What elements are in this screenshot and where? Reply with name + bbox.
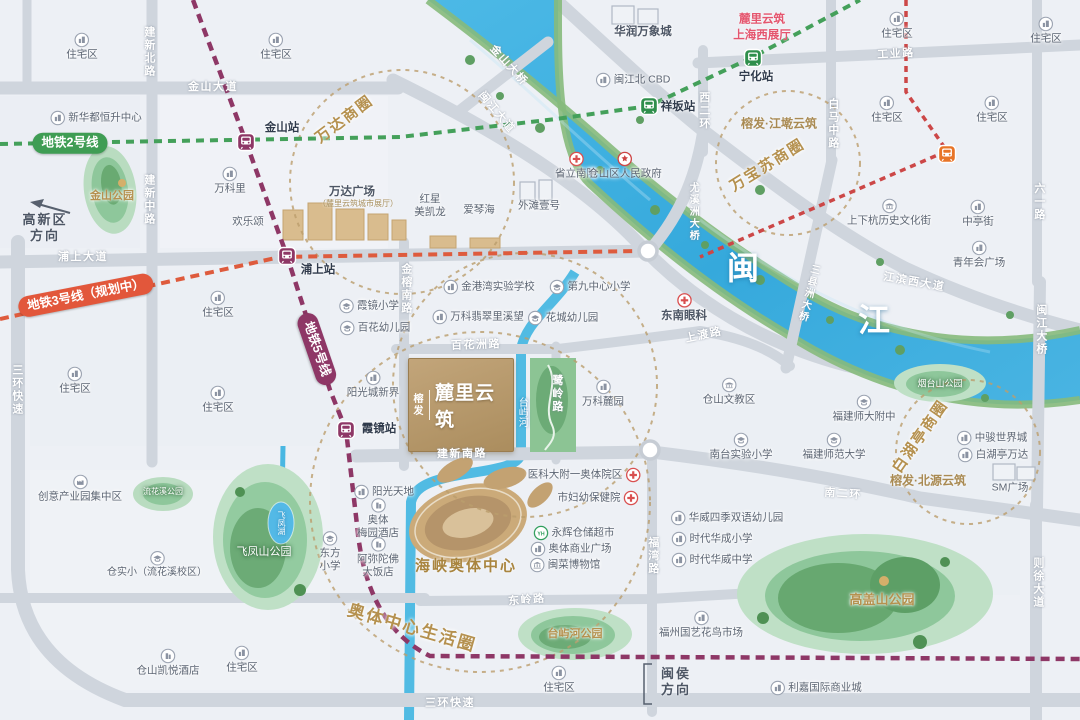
label-text: 金山大桥 <box>487 43 529 88</box>
poi-label: 福建师大附中 <box>833 394 896 423</box>
label-text: 闽江北 CBD <box>614 73 671 86</box>
building-icon <box>958 448 973 463</box>
poi-label: 中亭街 <box>962 199 994 228</box>
label-text: 奥体中心生活圈 <box>345 600 478 655</box>
label-text: 住宅区 <box>226 661 258 674</box>
poi-label: 创意产业园集中区 <box>38 474 122 503</box>
poi-label: 外滩壹号 <box>518 199 560 212</box>
label-text: 万科翡翠里溪望 <box>450 310 524 323</box>
poi-label: 白湖亭万达 <box>958 448 1029 463</box>
minjiang-river-label: 江 <box>858 300 890 340</box>
label-text: 台屿河 <box>516 397 527 427</box>
building-icon <box>672 553 687 568</box>
road-label: 福湾路 <box>645 537 659 576</box>
label-text: 外滩壹号 <box>518 199 560 211</box>
label-text: 利嘉国际商业城 <box>788 681 862 694</box>
road-label: 六一路 <box>1031 183 1045 222</box>
label-text: SM广场 <box>992 481 1029 493</box>
label-text: 金山站 <box>265 122 300 134</box>
label-text: 第九中心小学 <box>568 280 631 293</box>
park-label: 台屿河公园 <box>548 628 603 642</box>
water-label: 飞凤湖 <box>276 511 286 535</box>
label-text: 南台实验小学 <box>710 448 773 461</box>
building-icon <box>957 431 972 446</box>
building-icon <box>75 32 90 47</box>
poi-label: 红星 美凯龙 <box>414 193 446 219</box>
poi-label: 奥体商业广场 <box>531 542 612 557</box>
label-text: 阳光天地 <box>372 485 414 498</box>
building-icon <box>972 240 987 255</box>
hospital-icon <box>625 468 640 483</box>
pushang-station-icon <box>278 247 297 266</box>
label-text: 永辉仓储超市 <box>552 526 615 539</box>
label-text: 建新北路 <box>143 26 155 78</box>
park-label: 飞凤山公园 <box>237 546 292 560</box>
metro-station-icon <box>237 133 256 152</box>
label-text: 创意产业园集中区 <box>38 490 122 503</box>
label-text: 金港湾实验学校 <box>461 280 535 293</box>
poi-label: 住宅区 <box>543 665 575 694</box>
label-text: 祥坂站 <box>661 101 696 113</box>
school-icon <box>339 299 354 314</box>
metro-station-icon <box>278 247 297 266</box>
business-circle-label: 万达商圈 <box>312 92 378 148</box>
gaogaishan-park-label: 高盖山公园 <box>849 592 914 608</box>
poi-label: 青年会广场 <box>953 240 1006 269</box>
business-circle-label: 万宝苏商圈 <box>727 136 809 197</box>
label-text: 阿弥陀佛 大饭店 <box>357 553 399 579</box>
poi-label: 欢乐颂 <box>232 215 264 228</box>
label-text: 闽江大道 <box>476 89 517 135</box>
hospital-icon <box>569 151 584 166</box>
poi-label: 住宅区 <box>260 32 292 61</box>
road-label: 上渡路 <box>684 325 724 346</box>
label-text: 高新区 方向 <box>22 212 67 243</box>
label-text: 金山大道 <box>188 81 238 93</box>
label-text: 住宅区 <box>976 111 1008 124</box>
poi-label: 万达广场 <box>329 185 375 199</box>
label-text: 万科里 <box>214 182 246 195</box>
label-text: 榕发·江墘云筑 <box>741 117 817 131</box>
poi-label: 阿弥陀佛 大饭店 <box>357 537 399 579</box>
direction-gaoxinqu: 高新区 方向 <box>22 212 67 245</box>
label-text: 西二环 <box>698 92 710 131</box>
label-text: 福州国艺花鸟市场 <box>659 626 743 639</box>
label-text: 阳光城新界 <box>347 386 400 399</box>
label-text: 浦上大道 <box>58 251 108 263</box>
label-text: 华润万象城 <box>614 26 672 38</box>
label-text: 时代华威中学 <box>690 553 753 566</box>
industry-icon <box>73 474 88 489</box>
poi-label: 闽江北 CBD <box>596 73 671 88</box>
label-text: 仓山区人民政府 <box>588 167 662 180</box>
school-icon <box>857 394 872 409</box>
label-text: 海峡奥体中心 <box>415 558 517 575</box>
svg-text:YH: YH <box>537 531 544 537</box>
road-label: 三环快速 <box>425 697 475 711</box>
building-icon <box>971 199 986 214</box>
building-icon <box>235 645 250 660</box>
hotel-icon <box>371 537 386 552</box>
label-text: 霞镜站 <box>362 423 397 435</box>
minjiang-river-label: 闽 <box>727 248 759 288</box>
direction-minhou: 闽侯 方向 <box>661 666 691 699</box>
label-text: 闽 <box>727 250 759 286</box>
metro-station-icon <box>938 145 957 164</box>
label-text: 金山公园 <box>90 190 134 202</box>
label-text: 白湖亭万达 <box>976 448 1029 461</box>
station-label: 金山站 <box>265 121 300 135</box>
poi-label: 住宅区 <box>881 11 913 40</box>
label-text: 住宅区 <box>202 306 234 319</box>
road-label: 尤溪洲大桥 <box>686 182 699 242</box>
label-text: 上下杭历史文化街 <box>847 214 931 227</box>
road-label: 金山大桥 <box>486 43 530 89</box>
poi-label: YH永辉仓储超市 <box>534 526 615 541</box>
government-icon <box>618 151 633 166</box>
landmark-label: 榕发·江墘云筑 <box>741 117 817 132</box>
label-text: 飞凤湖 <box>277 511 286 535</box>
building-icon <box>552 665 567 680</box>
map-labels-layer: 金山大道建新北路建新中路浦上大道三环快速三环快速金榕南路百花洲路鹭岭路建新南路东… <box>0 0 1080 720</box>
label-text: 尤溪洲大桥 <box>687 182 698 242</box>
label-text: 浦上站 <box>301 264 336 276</box>
poi-label: 住宅区 <box>66 32 98 61</box>
label-text: 东南眼科 <box>661 309 707 323</box>
label-text: 烟台山公园 <box>917 378 962 388</box>
poi-sublabel: （麓里云筑城市展厅） <box>318 199 398 209</box>
label-text: 时代华成小学 <box>690 532 753 545</box>
road-label: 则徐大道 <box>1030 557 1044 609</box>
poi-label: 市妇幼保健院 <box>558 491 639 506</box>
label-text: 中骏世界城 <box>975 431 1028 444</box>
label-text: 市妇幼保健院 <box>558 491 621 504</box>
hospital-icon <box>677 293 692 308</box>
xiajing-station-icon <box>337 421 356 440</box>
metro-station-icon <box>640 97 659 116</box>
label-text: 华威四季双语幼儿园 <box>689 511 784 524</box>
poi-label: 住宅区 <box>202 290 234 319</box>
building-icon <box>68 366 83 381</box>
label-text: 榕发·北源云筑 <box>890 474 966 488</box>
poi-label: 时代华威中学 <box>672 553 753 568</box>
building-icon <box>531 542 546 557</box>
poi-label: 福建师范大学 <box>803 432 866 461</box>
label-text: 工业路 <box>877 47 915 61</box>
label-text: 住宅区 <box>543 681 575 694</box>
label-text: 南二环 <box>824 487 862 502</box>
label-text: 福建师大附中 <box>833 410 896 423</box>
metro-line2-label: 地铁2号线 <box>33 133 108 154</box>
poi-label: 住宅区 <box>1030 16 1062 45</box>
label-text: 鹭岭路 <box>551 375 563 414</box>
station-label: 宁化站 <box>739 70 774 84</box>
label-text: 高盖山公园 <box>849 592 914 607</box>
label-text: 则徐大道 <box>1032 557 1044 609</box>
poi-label: 金港湾实验学校 <box>443 280 535 295</box>
park-label: 流花溪公园 <box>143 487 183 497</box>
label-text: 万科麓园 <box>582 395 624 408</box>
xiangban-station-icon <box>640 97 659 116</box>
poi-label: 万科翡翠里溪望 <box>432 310 524 325</box>
poi-label: 百花幼儿园 <box>340 321 411 336</box>
road-label: 三县洲大桥 <box>794 262 821 323</box>
business-circle-label: 奥体中心生活圈 <box>345 599 479 656</box>
label-text: 住宅区 <box>66 48 98 61</box>
school-icon <box>340 321 355 336</box>
building-icon <box>366 370 381 385</box>
poi-label: 时代华成小学 <box>672 532 753 547</box>
jinshan-station-icon <box>237 133 256 152</box>
poi-label: 仓山文教区 <box>703 377 756 406</box>
label-text: 仓山凯悦酒店 <box>137 664 200 677</box>
road-label: 三环快速 <box>9 364 23 416</box>
poi-label: SM广场 <box>992 481 1029 494</box>
label-text: 东方 小学 <box>320 547 341 573</box>
metro-station-icon <box>744 49 763 68</box>
building-icon <box>672 532 687 547</box>
metro-line5-label: 地铁5号线 <box>295 310 339 388</box>
poi-label: 爱琴海 <box>463 203 495 216</box>
road-label: 工业路 <box>877 47 915 63</box>
building-icon <box>211 385 226 400</box>
label-text: 万达广场 <box>329 186 375 198</box>
label-text: 建新南路 <box>437 448 487 461</box>
building-icon <box>269 32 284 47</box>
label-text: 百花洲路 <box>451 338 501 352</box>
label-text: （麓里云筑城市展厅） <box>318 199 398 208</box>
hotel-icon <box>371 498 386 513</box>
road-label: 南二环 <box>824 487 862 503</box>
poi-label: 住宅区 <box>871 95 903 124</box>
label-text: 六一路 <box>1033 183 1045 222</box>
road-label: 建新中路 <box>141 174 155 226</box>
road-label: 东岭路 <box>508 593 547 610</box>
metro-station-icon <box>337 421 356 440</box>
park-label: 金山公园 <box>90 190 134 204</box>
road-label: 金榕南路 <box>398 263 412 315</box>
label-text: 建新中路 <box>143 174 155 226</box>
school-icon <box>528 311 543 326</box>
label-text: 宁化站 <box>739 71 774 83</box>
building-icon <box>223 166 238 181</box>
label-text: 爱琴海 <box>463 203 495 215</box>
road-label: 百花洲路 <box>451 338 501 353</box>
label-text: 住宅区 <box>260 48 292 61</box>
museum-icon <box>530 558 545 573</box>
ninghua-station-icon <box>744 49 763 68</box>
poi-label: 东南眼科 <box>661 293 707 323</box>
label-text: 东岭路 <box>508 593 546 608</box>
poi-label: 上下杭历史文化街 <box>847 198 931 227</box>
label-text: 福建师范大学 <box>803 448 866 461</box>
poi-label: 阳光城新界 <box>347 370 400 399</box>
label-text: 百花幼儿园 <box>358 321 411 334</box>
road-jinshan-avenue: 金山大道 <box>188 81 238 95</box>
label-text: 住宅区 <box>202 401 234 414</box>
poi-label: 闽菜博物馆 <box>530 558 601 573</box>
road-label: 闽江大道 <box>475 89 518 136</box>
label-text: 飞凤山公园 <box>237 546 292 558</box>
metro-line3-label: 地铁3号线（规划中） <box>17 272 156 318</box>
poi-label: 利嘉国际商业城 <box>770 681 862 696</box>
metro-station-icon <box>938 145 957 164</box>
building-icon <box>890 11 905 26</box>
business-circle-label: 白湖亭商圈 <box>889 397 953 477</box>
poi-label: 花城幼儿园 <box>528 311 599 326</box>
school-icon <box>323 531 338 546</box>
label-text: 白马中路 <box>827 98 839 150</box>
label-text: 闽菜博物馆 <box>548 558 601 571</box>
poi-label: 住宅区 <box>202 385 234 414</box>
poi-label: 第九中心小学 <box>550 280 631 295</box>
label-text: 地铁5号线 <box>302 320 334 378</box>
building-icon <box>1039 16 1054 31</box>
poi-label: 福州国艺花鸟市场 <box>659 610 743 639</box>
label-text: 上渡路 <box>684 325 723 345</box>
park-label: 烟台山公园 <box>917 378 962 389</box>
building-icon <box>671 511 686 526</box>
showroom-label: 麓里云筑 上海西展厅 <box>733 12 791 43</box>
label-text: 医科大附一奥体院区 <box>528 468 623 481</box>
label-text: 闽侯 方向 <box>661 666 691 697</box>
label-text: 花城幼儿园 <box>546 311 599 324</box>
label-text: 住宅区 <box>1030 32 1062 45</box>
poi-label: 医科大附一奥体院区 <box>528 468 641 483</box>
school-icon <box>827 432 842 447</box>
label-text: 青年会广场 <box>953 256 1006 269</box>
poi-label: 万科里 <box>214 166 246 195</box>
road-label: 浦上大道 <box>58 251 108 265</box>
road-label: 闽江大桥 <box>1033 304 1047 356</box>
building-icon <box>770 681 785 696</box>
poi-label: 新华都恒升中心 <box>50 111 142 126</box>
label-text: 万宝苏商圈 <box>727 136 808 195</box>
road-label: 西二环 <box>696 92 710 131</box>
hotel-icon <box>161 648 176 663</box>
road-label: 鹭岭路 <box>549 375 563 414</box>
road-label: 建新北路 <box>141 26 155 78</box>
poi-label: 仓实小（流花溪校区） <box>107 551 207 580</box>
road-label: 白马中路 <box>825 98 839 150</box>
poi-label: 万科麓园 <box>582 379 624 408</box>
water-label: 台屿河 <box>515 397 528 427</box>
building-icon <box>443 280 458 295</box>
building-icon <box>985 95 1000 110</box>
building-icon <box>596 379 611 394</box>
building-icon <box>50 111 65 126</box>
label-text: 新华都恒升中心 <box>68 111 142 124</box>
label-text: 金榕南路 <box>400 263 412 315</box>
label-text: 白湖亭商圈 <box>889 397 952 476</box>
label-text: 三环快速 <box>425 697 475 709</box>
label-text: 住宅区 <box>881 27 913 40</box>
label-text: 仓实小（流花溪校区） <box>107 567 207 580</box>
building-icon <box>694 610 709 625</box>
poi-label: 南台实验小学 <box>710 432 773 461</box>
label-text: 闽江大桥 <box>1035 304 1047 356</box>
label-text: 住宅区 <box>871 111 903 124</box>
label-text: 三环快速 <box>11 364 23 416</box>
school-icon <box>150 551 165 566</box>
label-text: 福湾路 <box>647 537 659 576</box>
school-icon <box>550 280 565 295</box>
label-text: 霞镜小学 <box>357 299 399 312</box>
building-icon <box>596 73 611 88</box>
landmark-label: 榕发·北源云筑 <box>890 474 966 489</box>
road-label: 建新南路 <box>437 448 487 463</box>
poi-label: 霞镜小学 <box>339 299 399 314</box>
poi-label: 住宅区 <box>59 366 91 395</box>
label-text: 中亭街 <box>962 215 994 228</box>
hospital-icon <box>624 491 639 506</box>
poi-label: 仓山凯悦酒店 <box>137 648 200 677</box>
label-text: 地铁2号线 <box>42 135 99 149</box>
label-text: 红星 美凯龙 <box>414 193 446 218</box>
station-label: 霞镜站 <box>362 422 397 436</box>
school-icon <box>734 432 749 447</box>
poi-label: 东方 小学 <box>320 531 341 573</box>
poi-label: 华威四季双语幼儿园 <box>671 511 784 526</box>
building-icon <box>211 290 226 305</box>
poi-label: 住宅区 <box>976 95 1008 124</box>
poi-label: 中骏世界城 <box>957 431 1028 446</box>
label-text: 麓里云筑 上海西展厅 <box>733 13 791 41</box>
label-text: 仓山文教区 <box>703 393 756 406</box>
building-icon <box>432 310 447 325</box>
map-canvas[interactable]: 榕发 麓里云筑 金山大道建新北路建新中路浦上大道三环快速三环快速金榕南路百花洲路… <box>0 0 1080 720</box>
label-text: 江滨西大道 <box>882 271 946 294</box>
label-text: 奥体商业广场 <box>549 542 612 555</box>
label-text: 流花溪公园 <box>143 487 183 496</box>
label-text: 住宅区 <box>59 382 91 395</box>
building-icon <box>880 95 895 110</box>
landmark-icon <box>722 377 737 392</box>
road-label: 江滨西大道 <box>882 271 946 295</box>
label-text: 欢乐颂 <box>232 215 264 227</box>
poi-label: 奥体 梅园酒店 <box>357 498 399 540</box>
label-text: 江 <box>858 302 890 338</box>
olympic-center-label: 海峡奥体中心 <box>415 558 517 577</box>
supermarket-icon: YH <box>534 526 549 541</box>
landmark-icon <box>882 198 897 213</box>
station-label: 浦上站 <box>301 263 336 277</box>
label-text: 万达商圈 <box>312 92 377 147</box>
label-text: 台屿河公园 <box>548 628 603 640</box>
label-text: 地铁3号线（规划中） <box>26 276 146 313</box>
poi-label: 华润万象城 <box>614 25 672 39</box>
label-text: 三县洲大桥 <box>795 263 820 324</box>
poi-label: 仓山区人民政府 <box>588 151 662 180</box>
poi-label: 住宅区 <box>226 645 258 674</box>
station-label: 祥坂站 <box>661 100 696 114</box>
